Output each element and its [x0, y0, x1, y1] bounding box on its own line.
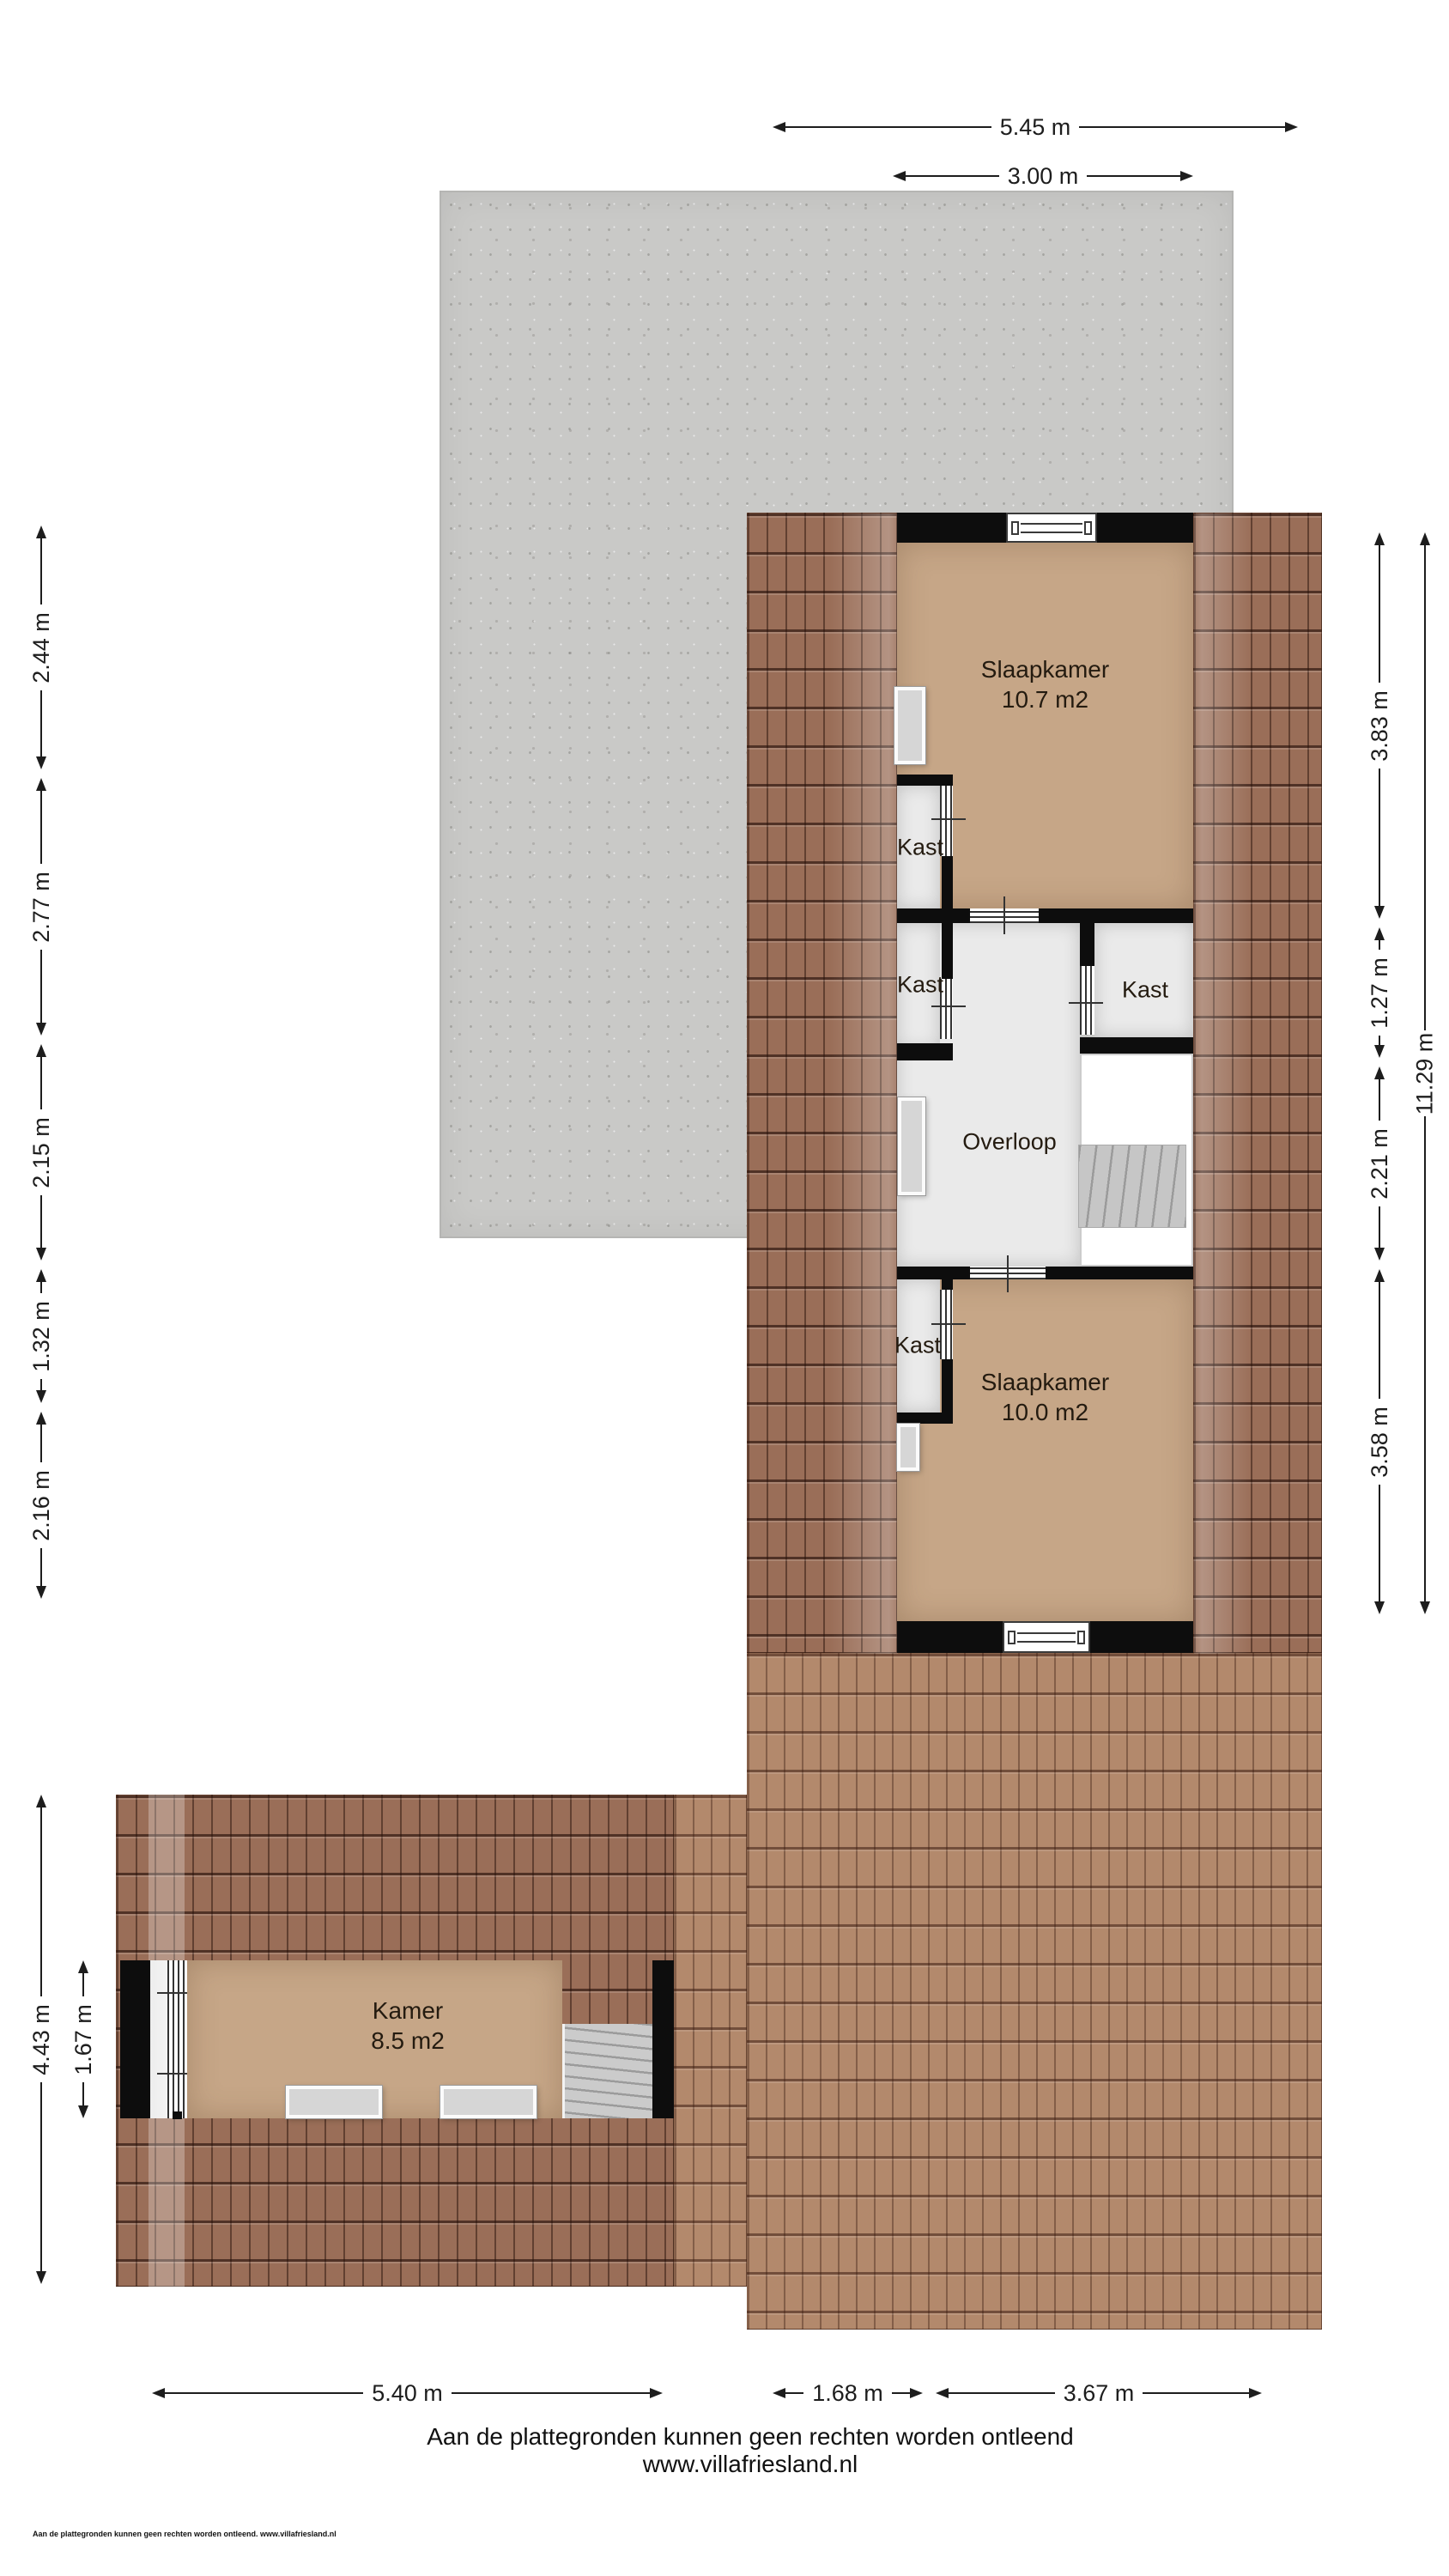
window-frame-icon — [1011, 521, 1019, 535]
main-building: Slaapkamer 10.7 m2 Kast Kast Kast Overlo… — [747, 513, 1322, 1653]
dimension-left-5: 2.16 m — [22, 1412, 60, 1599]
roof-slope-left — [747, 513, 897, 1653]
room-label-kast1: Kast — [897, 835, 943, 861]
arrowhead-icon — [36, 2271, 46, 2284]
dimension-label: 3.83 m — [1367, 690, 1393, 762]
dimension-top-inner: 3.00 m — [893, 163, 1193, 189]
dimension-line — [40, 1379, 42, 1390]
dimension-line — [40, 1057, 42, 1109]
dimension-line — [40, 1195, 42, 1248]
dimension-bottom-1: 5.40 m — [152, 2380, 663, 2406]
arrowhead-icon — [36, 756, 46, 769]
wall — [953, 908, 970, 923]
dimension-line — [40, 1807, 42, 1996]
arrowhead-icon — [1374, 1601, 1385, 1614]
dimension-line — [1424, 545, 1426, 1030]
dimension-line — [1379, 1485, 1380, 1601]
dimension-line — [1143, 2392, 1249, 2394]
arrowhead-icon — [36, 1269, 46, 1282]
arrowhead-icon — [1374, 1066, 1385, 1079]
wall — [897, 908, 953, 923]
lower-roof-extension — [674, 1795, 747, 2287]
roof-ridge-highlight — [1194, 513, 1323, 1654]
room-area: 8.5 m2 — [288, 2026, 528, 2056]
dimension-label: 3.67 m — [1055, 2380, 1143, 2407]
dimension-top-outer: 5.45 m — [773, 114, 1298, 140]
door-tick — [1003, 896, 1005, 934]
dimension-line — [40, 950, 42, 1023]
wall — [1039, 908, 1193, 923]
arrowhead-icon — [773, 122, 785, 132]
door-tick — [931, 818, 966, 820]
door-tick — [931, 1005, 966, 1007]
dimension-bottom-3: 3.67 m — [936, 2380, 1262, 2406]
arrowhead-icon — [1374, 532, 1385, 545]
dimension-bottom-2: 1.68 m — [773, 2380, 923, 2406]
arrowhead-icon — [910, 2388, 923, 2398]
dimension-line — [1379, 1079, 1380, 1121]
website-text: www.villafriesland.nl — [52, 2451, 1449, 2478]
dimension-line — [82, 2082, 84, 2105]
wall — [120, 1960, 150, 2118]
arrowhead-icon — [1285, 122, 1298, 132]
room-label-overloop: Overloop — [962, 1129, 1057, 1156]
dimension-label: 2.21 m — [1367, 1128, 1393, 1200]
dimension-line — [40, 1282, 42, 1293]
arrowhead-icon — [78, 1960, 88, 1973]
window-glass-icon — [1021, 523, 1082, 533]
dimension-label: 5.40 m — [363, 2380, 452, 2407]
door-opening-kamer — [167, 1960, 185, 2118]
wall — [1097, 513, 1193, 543]
window-frame-icon — [1084, 521, 1092, 535]
small-print-text: Aan de plattegronden kunnen geen rechten… — [33, 2530, 336, 2538]
lower-roof — [747, 1653, 1322, 2330]
kamer-staircase — [562, 2024, 652, 2118]
dimension-line — [40, 2082, 42, 2271]
dimension-line — [785, 126, 991, 128]
arrowhead-icon — [36, 1390, 46, 1403]
wall — [942, 1279, 953, 1290]
dimension-line — [1379, 1036, 1380, 1045]
window-frame-icon — [1008, 1631, 1016, 1644]
arrowhead-icon — [936, 2388, 949, 2398]
dimension-line — [40, 690, 42, 756]
dimension-label: 1.27 m — [1367, 957, 1393, 1029]
wall — [1090, 1621, 1193, 1653]
dimension-label: 3.58 m — [1367, 1406, 1393, 1478]
arrowhead-icon — [1420, 532, 1430, 545]
dimension-label: 1.68 m — [803, 2380, 892, 2407]
arrowhead-icon — [78, 2105, 88, 2118]
dimension-line — [40, 1548, 42, 1586]
arrowhead-icon — [36, 1044, 46, 1057]
dimension-line — [40, 1425, 42, 1462]
room-label-kast3: Kast — [1122, 977, 1168, 1004]
arrowhead-icon — [36, 1023, 46, 1036]
arrowhead-icon — [650, 2388, 663, 2398]
room-name: Slaapkamer — [897, 654, 1193, 684]
arrowhead-icon — [1374, 1269, 1385, 1282]
dimension-line — [165, 2392, 363, 2394]
dimension-label: 11.29 m — [1412, 1032, 1439, 1115]
room-name: Kamer — [288, 1996, 528, 2026]
dimension-right-4: 3.58 m — [1361, 1269, 1398, 1614]
arrowhead-icon — [1420, 1601, 1430, 1614]
room-label-kast2: Kast — [897, 972, 943, 999]
arrowhead-icon — [36, 1248, 46, 1261]
arrowhead-icon — [1374, 906, 1385, 919]
room-label-kamer: Kamer 8.5 m2 — [288, 1996, 528, 2056]
dimension-right-total: 11.29 m — [1406, 532, 1444, 1614]
arrowhead-icon — [1249, 2388, 1262, 2398]
arrowhead-icon — [36, 1412, 46, 1425]
room-label-slaapkamer-bottom: Slaapkamer 10.0 m2 — [897, 1367, 1193, 1427]
dimension-left-2: 2.77 m — [22, 778, 60, 1036]
wall — [1080, 1037, 1193, 1054]
arrowhead-icon — [152, 2388, 165, 2398]
wall — [942, 923, 953, 979]
window-frame-icon — [1077, 1631, 1085, 1644]
room-name: Slaapkamer — [897, 1367, 1193, 1397]
room-label-kast4: Kast — [894, 1333, 941, 1359]
dimension-line — [1379, 545, 1380, 683]
dimension-label: 2.16 m — [28, 1470, 55, 1541]
dimension-label: 3.00 m — [999, 163, 1088, 190]
window-bottom — [1003, 1621, 1090, 1653]
dimension-line — [785, 2392, 803, 2394]
disclaimer-text: Aan de plattegronden kunnen geen rechten… — [52, 2423, 1449, 2451]
arrowhead-icon — [1374, 1248, 1385, 1261]
dimension-line — [906, 175, 999, 177]
kamer-building: Kamer 8.5 m2 — [116, 1795, 674, 2287]
kamer-window — [440, 2086, 537, 2118]
wall — [1046, 1267, 1193, 1279]
dimension-label: 1.32 m — [28, 1301, 55, 1372]
arrowhead-icon — [1180, 171, 1193, 181]
window-top — [1006, 513, 1097, 543]
dimension-line — [1424, 1116, 1426, 1601]
dimension-label: 2.44 m — [28, 612, 55, 683]
roof-ridge-highlight — [748, 513, 898, 1654]
arrowhead-icon — [773, 2388, 785, 2398]
arrowhead-icon — [36, 1795, 46, 1807]
dimension-line — [40, 791, 42, 864]
roof-window — [898, 1097, 925, 1195]
arrowhead-icon — [1374, 927, 1385, 940]
dimension-line — [949, 2392, 1055, 2394]
floorplan-canvas: Slaapkamer 10.7 m2 Kast Kast Kast Overlo… — [0, 0, 1449, 2576]
dimension-label: 5.45 m — [991, 114, 1080, 141]
dimension-left-4: 1.32 m — [22, 1269, 60, 1403]
dimension-line — [1379, 1282, 1380, 1399]
arrowhead-icon — [893, 171, 906, 181]
arrowhead-icon — [36, 1586, 46, 1599]
dimension-line — [1079, 126, 1285, 128]
wall — [1080, 923, 1094, 966]
kamer-window — [286, 2086, 382, 2118]
dimension-line — [1087, 175, 1180, 177]
dimension-left-1: 2.44 m — [22, 526, 60, 769]
dimension-line — [1379, 940, 1380, 950]
wall — [897, 775, 953, 786]
room-area: 10.0 m2 — [897, 1397, 1193, 1427]
dimension-label: 2.77 m — [28, 872, 55, 943]
arrowhead-icon — [36, 778, 46, 791]
wall-stub — [173, 2111, 182, 2119]
dimension-label: 1.67 m — [70, 2004, 97, 2075]
roof-window — [897, 1424, 919, 1471]
staircase — [1078, 1145, 1186, 1228]
dimension-line — [892, 2392, 910, 2394]
room-area: 10.7 m2 — [897, 684, 1193, 714]
dimension-label: 2.15 m — [28, 1117, 55, 1188]
dimension-line — [1379, 1206, 1380, 1248]
arrowhead-icon — [1374, 1045, 1385, 1058]
wall — [897, 1621, 1003, 1653]
dimension-line — [82, 1973, 84, 1996]
door-tick — [1069, 1002, 1103, 1004]
wall — [897, 1267, 970, 1279]
dimension-line — [452, 2392, 650, 2394]
dimension-kamer-inner: 1.67 m — [64, 1960, 102, 2118]
arrowhead-icon — [36, 526, 46, 538]
room-label-slaapkamer-top: Slaapkamer 10.7 m2 — [897, 654, 1193, 714]
wall — [897, 513, 1006, 543]
roof-slope-right — [1193, 513, 1322, 1653]
door-tick — [931, 1323, 966, 1325]
door-opening-kast3 — [1080, 966, 1094, 1035]
dimension-line — [40, 538, 42, 605]
dimension-right-1: 3.83 m — [1361, 532, 1398, 919]
dimension-line — [1379, 769, 1380, 906]
wall — [652, 1960, 674, 2118]
wall — [897, 1043, 953, 1060]
window-glass-icon — [1017, 1632, 1076, 1643]
wall — [942, 856, 953, 908]
door-tick — [1007, 1255, 1009, 1292]
dimension-left-3: 2.15 m — [22, 1044, 60, 1261]
